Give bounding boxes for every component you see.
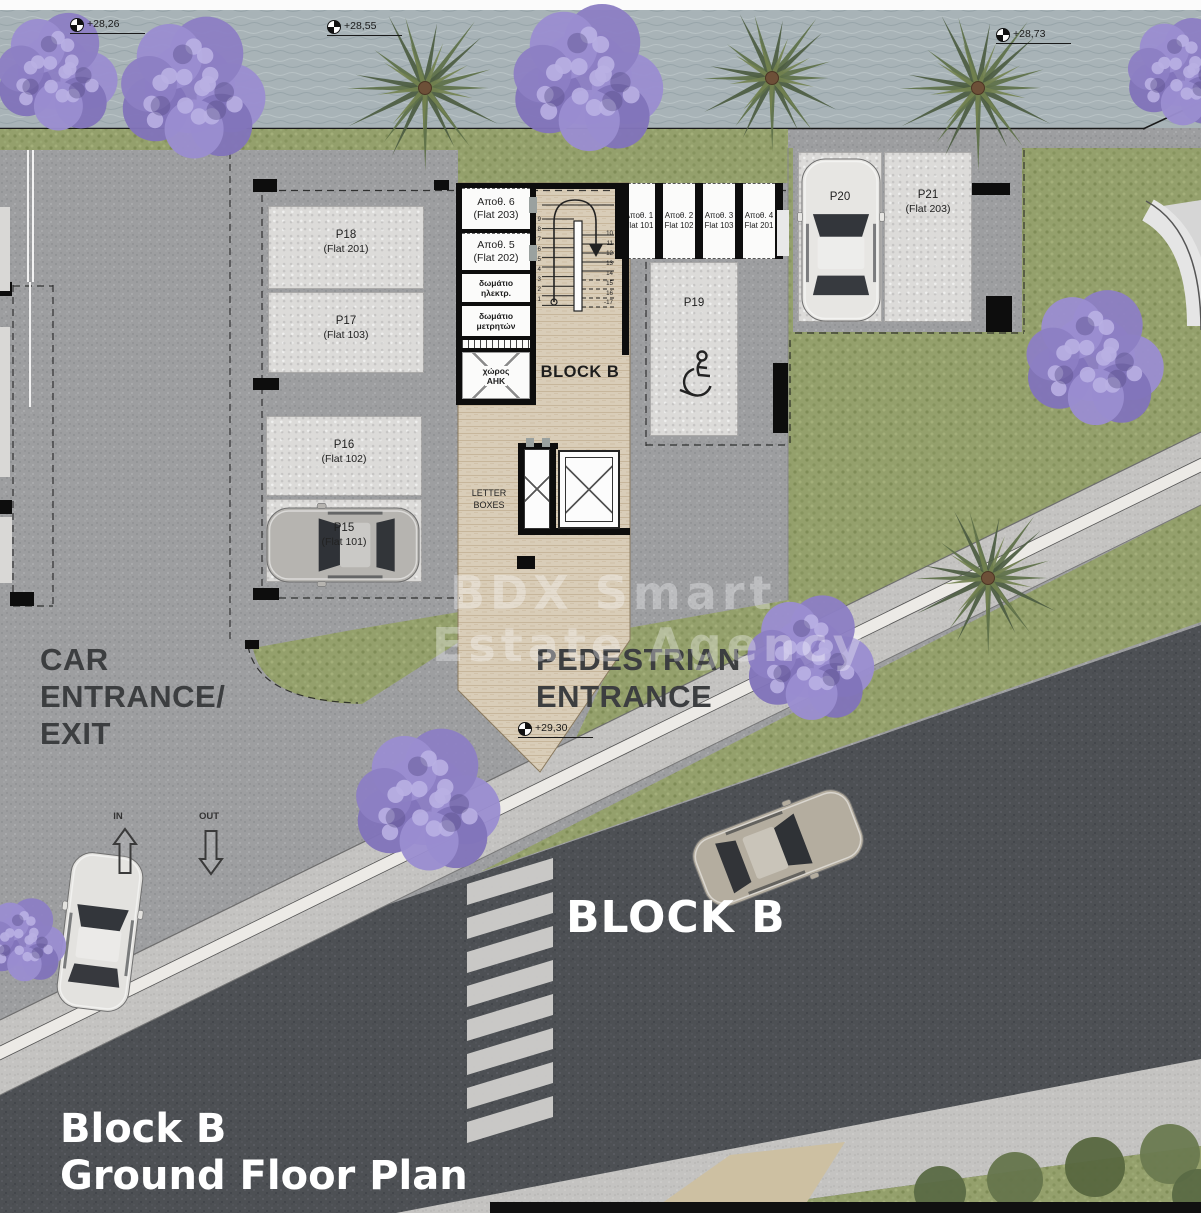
crosswalk-stripe — [467, 1028, 553, 1075]
palm-tree — [703, 14, 836, 151]
jacaranda-tree — [356, 729, 500, 871]
grass-strip-top — [0, 129, 788, 183]
survey-point-icon — [70, 18, 84, 32]
curved-road-edge — [1148, 210, 1199, 326]
in-label: IN — [102, 811, 134, 822]
room-label: ΑΗΚ — [485, 376, 507, 386]
stair-step-number: 2 — [530, 287, 541, 294]
jacaranda-tree — [121, 17, 265, 159]
jacaranda-tree — [0, 898, 66, 981]
room-flat: Flat 102 — [665, 221, 694, 231]
meter-room: δωμάτιο μετρητών — [462, 306, 530, 336]
boundary-white-lines — [27, 150, 34, 407]
letter-boxes-label: LETTER BOXES — [458, 488, 520, 511]
crosswalk-stripe — [467, 1096, 553, 1143]
stair-step-number: 15 — [596, 281, 613, 288]
room-label: Αποθ. 6 — [477, 196, 514, 209]
wall — [550, 448, 556, 534]
stair-step-number: 9 — [530, 217, 541, 224]
stair-numbers-left: 987654321 — [530, 217, 541, 303]
parking-space-p18 — [268, 206, 424, 289]
palm-tree — [347, 16, 497, 171]
service-shaft — [524, 449, 550, 529]
lawn-entrance-wedge — [253, 612, 459, 704]
footpath-edge — [0, 458, 1201, 1046]
jacaranda-tree — [1128, 18, 1201, 125]
bushes — [914, 1124, 1201, 1213]
ahk-room: χώρος ΑΗΚ — [462, 352, 530, 399]
out-arrow-icon — [198, 830, 226, 876]
room-flat: (Flat 202) — [474, 252, 519, 265]
hatch-strip — [462, 340, 530, 348]
trees-layer — [0, 0, 1201, 1213]
stair-step-number: 4 — [530, 267, 541, 274]
stair-step-number: 14 — [596, 271, 613, 278]
survey-point-icon — [518, 722, 532, 736]
room-flat: (Flat 203) — [474, 209, 519, 222]
bottom-border-bar — [490, 1202, 1201, 1213]
neighbor-stalls — [0, 207, 12, 583]
stair-step-number: 12 — [596, 251, 613, 258]
room-label: μετρητών — [477, 321, 516, 331]
room-flat: Flat 201 — [745, 221, 774, 231]
wall-notch — [777, 210, 789, 256]
stair-step-number: 7 — [530, 237, 541, 244]
room-label: Αποθ. 3 — [705, 211, 734, 221]
crosswalk — [467, 858, 553, 1143]
storage-row: Αποθ. 1 Flat 101 Αποθ. 2 Flat 102 Αποθ. … — [615, 183, 783, 259]
room-label: Αποθ. 5 — [477, 239, 514, 252]
parking-space-p19 — [650, 262, 738, 436]
parking-space-p20 — [798, 152, 882, 322]
wall — [622, 183, 629, 355]
crosswalk-stripe — [467, 1062, 553, 1109]
pedestrian-entrance-label: PEDESTRIAN ENTRANCE — [536, 641, 741, 715]
cars-layer — [0, 0, 1201, 1213]
door-opening — [542, 438, 550, 447]
room-label: δωμάτιο — [479, 278, 513, 288]
crosswalk-stripe — [467, 960, 553, 1007]
footpath-edge — [0, 472, 1201, 1060]
palm-tree — [915, 511, 1055, 655]
car-entrance-label: CAR ENTRANCE/ EXIT — [40, 641, 225, 752]
curved-road-line — [1146, 201, 1201, 330]
letter-boxes-line: LETTER — [472, 488, 507, 498]
corner-pavement — [1150, 200, 1201, 330]
door-opening — [529, 197, 537, 213]
elevation-value: +28,73 — [1013, 28, 1045, 40]
road-block-b-label: BLOCK B — [566, 892, 786, 943]
crosswalk-stripe — [467, 994, 553, 1041]
survey-point-icon — [996, 28, 1010, 42]
floor-plan-canvas: Αποθ. 6 (Flat 203) Αποθ. 5 (Flat 202) δω… — [0, 0, 1201, 1213]
room-flat: Flat 103 — [705, 221, 734, 231]
bottom-sidewalk — [396, 1059, 1201, 1213]
stair-step-number: -17 — [596, 300, 613, 307]
footpath-stripe — [0, 458, 1201, 1060]
elevation-value: +29,30 — [535, 722, 567, 734]
parking-space-p17 — [268, 292, 424, 373]
elevator-cab — [565, 457, 613, 522]
crosswalk-stripe — [467, 858, 553, 905]
elevation-value: +28,55 — [344, 20, 376, 32]
elevation-marker: +28,26 — [70, 18, 145, 34]
parking-space-p21 — [884, 152, 972, 322]
stair-step-number: 10 — [596, 231, 613, 238]
room-label: Αποθ. 4 — [745, 211, 774, 221]
terrain-drawing — [0, 0, 1201, 1213]
elevation-marker: +28,73 — [996, 28, 1071, 44]
in-arrow-icon — [112, 827, 140, 877]
survey-point-icon — [327, 20, 341, 34]
car — [685, 779, 872, 917]
plan-title-line1: Block B — [60, 1106, 468, 1153]
storage-column: Αποθ. 6 (Flat 203) Αποθ. 5 (Flat 202) δω… — [456, 183, 536, 405]
sidewalk-edge — [0, 505, 1201, 1095]
wall — [536, 183, 628, 189]
electrical-room: δωμάτιο ηλεκτρ. — [462, 274, 530, 302]
storage-room-4: Αποθ. 4 Flat 201 — [743, 183, 775, 259]
boundary-line — [1143, 102, 1201, 129]
stair-step-number: 3 — [530, 277, 541, 284]
stair-step-number: 8 — [530, 227, 541, 234]
room-label: Αποθ. 2 — [665, 211, 694, 221]
car — [50, 850, 149, 1015]
parking-space-p15 — [266, 499, 422, 582]
top-margin — [0, 0, 1201, 12]
elevator — [558, 450, 620, 529]
jacaranda-tree — [1026, 290, 1163, 425]
crosswalk-stripe — [467, 892, 553, 939]
wall — [518, 528, 630, 535]
door-opening — [526, 438, 534, 447]
jacaranda-tree — [748, 595, 875, 720]
parking-space-p16 — [266, 416, 422, 496]
stair-direction-arrow — [554, 200, 596, 302]
elevation-marker: +29,30 — [518, 722, 593, 738]
storage-room-2: Αποθ. 2 Flat 102 — [663, 183, 695, 259]
jacaranda-tree — [514, 4, 664, 151]
plan-title: Block B Ground Floor Plan — [60, 1106, 468, 1200]
plan-title-line2: Ground Floor Plan — [60, 1153, 468, 1200]
road-surface — [0, 625, 1201, 1213]
stair-numbers-right: 10111213141516-17 — [596, 231, 613, 307]
room-label: ηλεκτρ. — [481, 288, 511, 298]
stair-step-number: 13 — [596, 261, 613, 268]
crosswalk-stripe — [467, 926, 553, 973]
storage-room-5: Αποθ. 5 (Flat 202) — [462, 233, 530, 270]
letter-boxes-line: BOXES — [473, 500, 504, 510]
stair-step-number: 16 — [596, 291, 613, 298]
stair-step-number: 1 — [530, 297, 541, 304]
out-label: OUT — [192, 811, 226, 822]
storage-room-3: Αποθ. 3 Flat 103 — [703, 183, 735, 259]
elevation-value: +28,26 — [87, 18, 119, 30]
room-label: χώρος — [481, 366, 512, 376]
room-label: δωμάτιο — [479, 311, 513, 321]
lawn-below-sidewalk — [480, 505, 1201, 872]
storage-room-6: Αποθ. 6 (Flat 203) — [462, 188, 530, 229]
elevation-marker: +28,55 — [327, 20, 402, 36]
stair-step-number: 5 — [530, 257, 541, 264]
stair-step-number: 6 — [530, 247, 541, 254]
room-label: Αποθ. 1 — [625, 211, 654, 221]
block-b-lobby-label: BLOCK B — [533, 363, 627, 382]
stair-step-number: 11 — [596, 241, 613, 248]
